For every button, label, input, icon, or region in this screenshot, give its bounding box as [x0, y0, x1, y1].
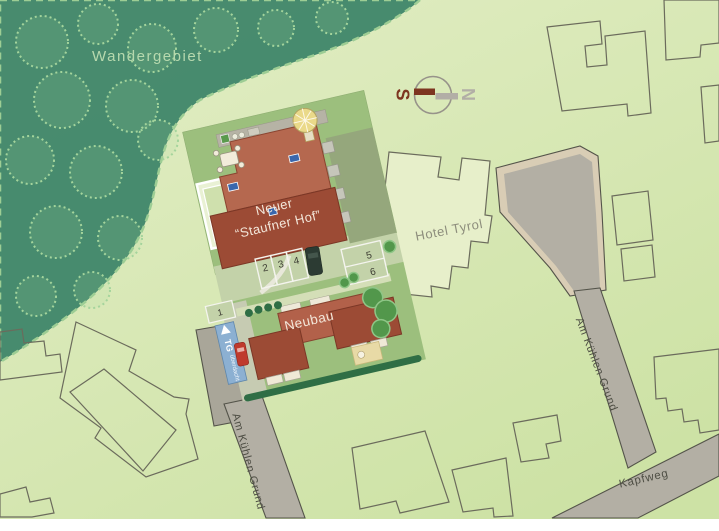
window-marker [268, 207, 277, 216]
tree-icon [258, 10, 294, 46]
tree-icon [78, 4, 118, 44]
map-canvas: 2 3 4 5 6 1 TG überdacht [0, 0, 719, 531]
tree-icon [16, 276, 56, 316]
tree-icon [98, 216, 142, 260]
bottom-margin [0, 519, 719, 531]
site-plan-map: 2 3 4 5 6 1 TG überdacht [0, 0, 719, 531]
compass-needle-south [414, 89, 435, 96]
tree-icon [74, 272, 110, 308]
planter-icon [220, 134, 230, 144]
tree-icon [128, 24, 176, 72]
tree-icon [138, 120, 178, 160]
tree-icon [30, 206, 82, 258]
compass-needle-north [436, 93, 459, 100]
tree-icon [6, 136, 54, 184]
tree-icon [16, 16, 68, 68]
tree-icon [194, 8, 238, 52]
tree-icon [70, 146, 122, 198]
tree-icon [316, 2, 348, 34]
tree-icon [34, 72, 90, 128]
